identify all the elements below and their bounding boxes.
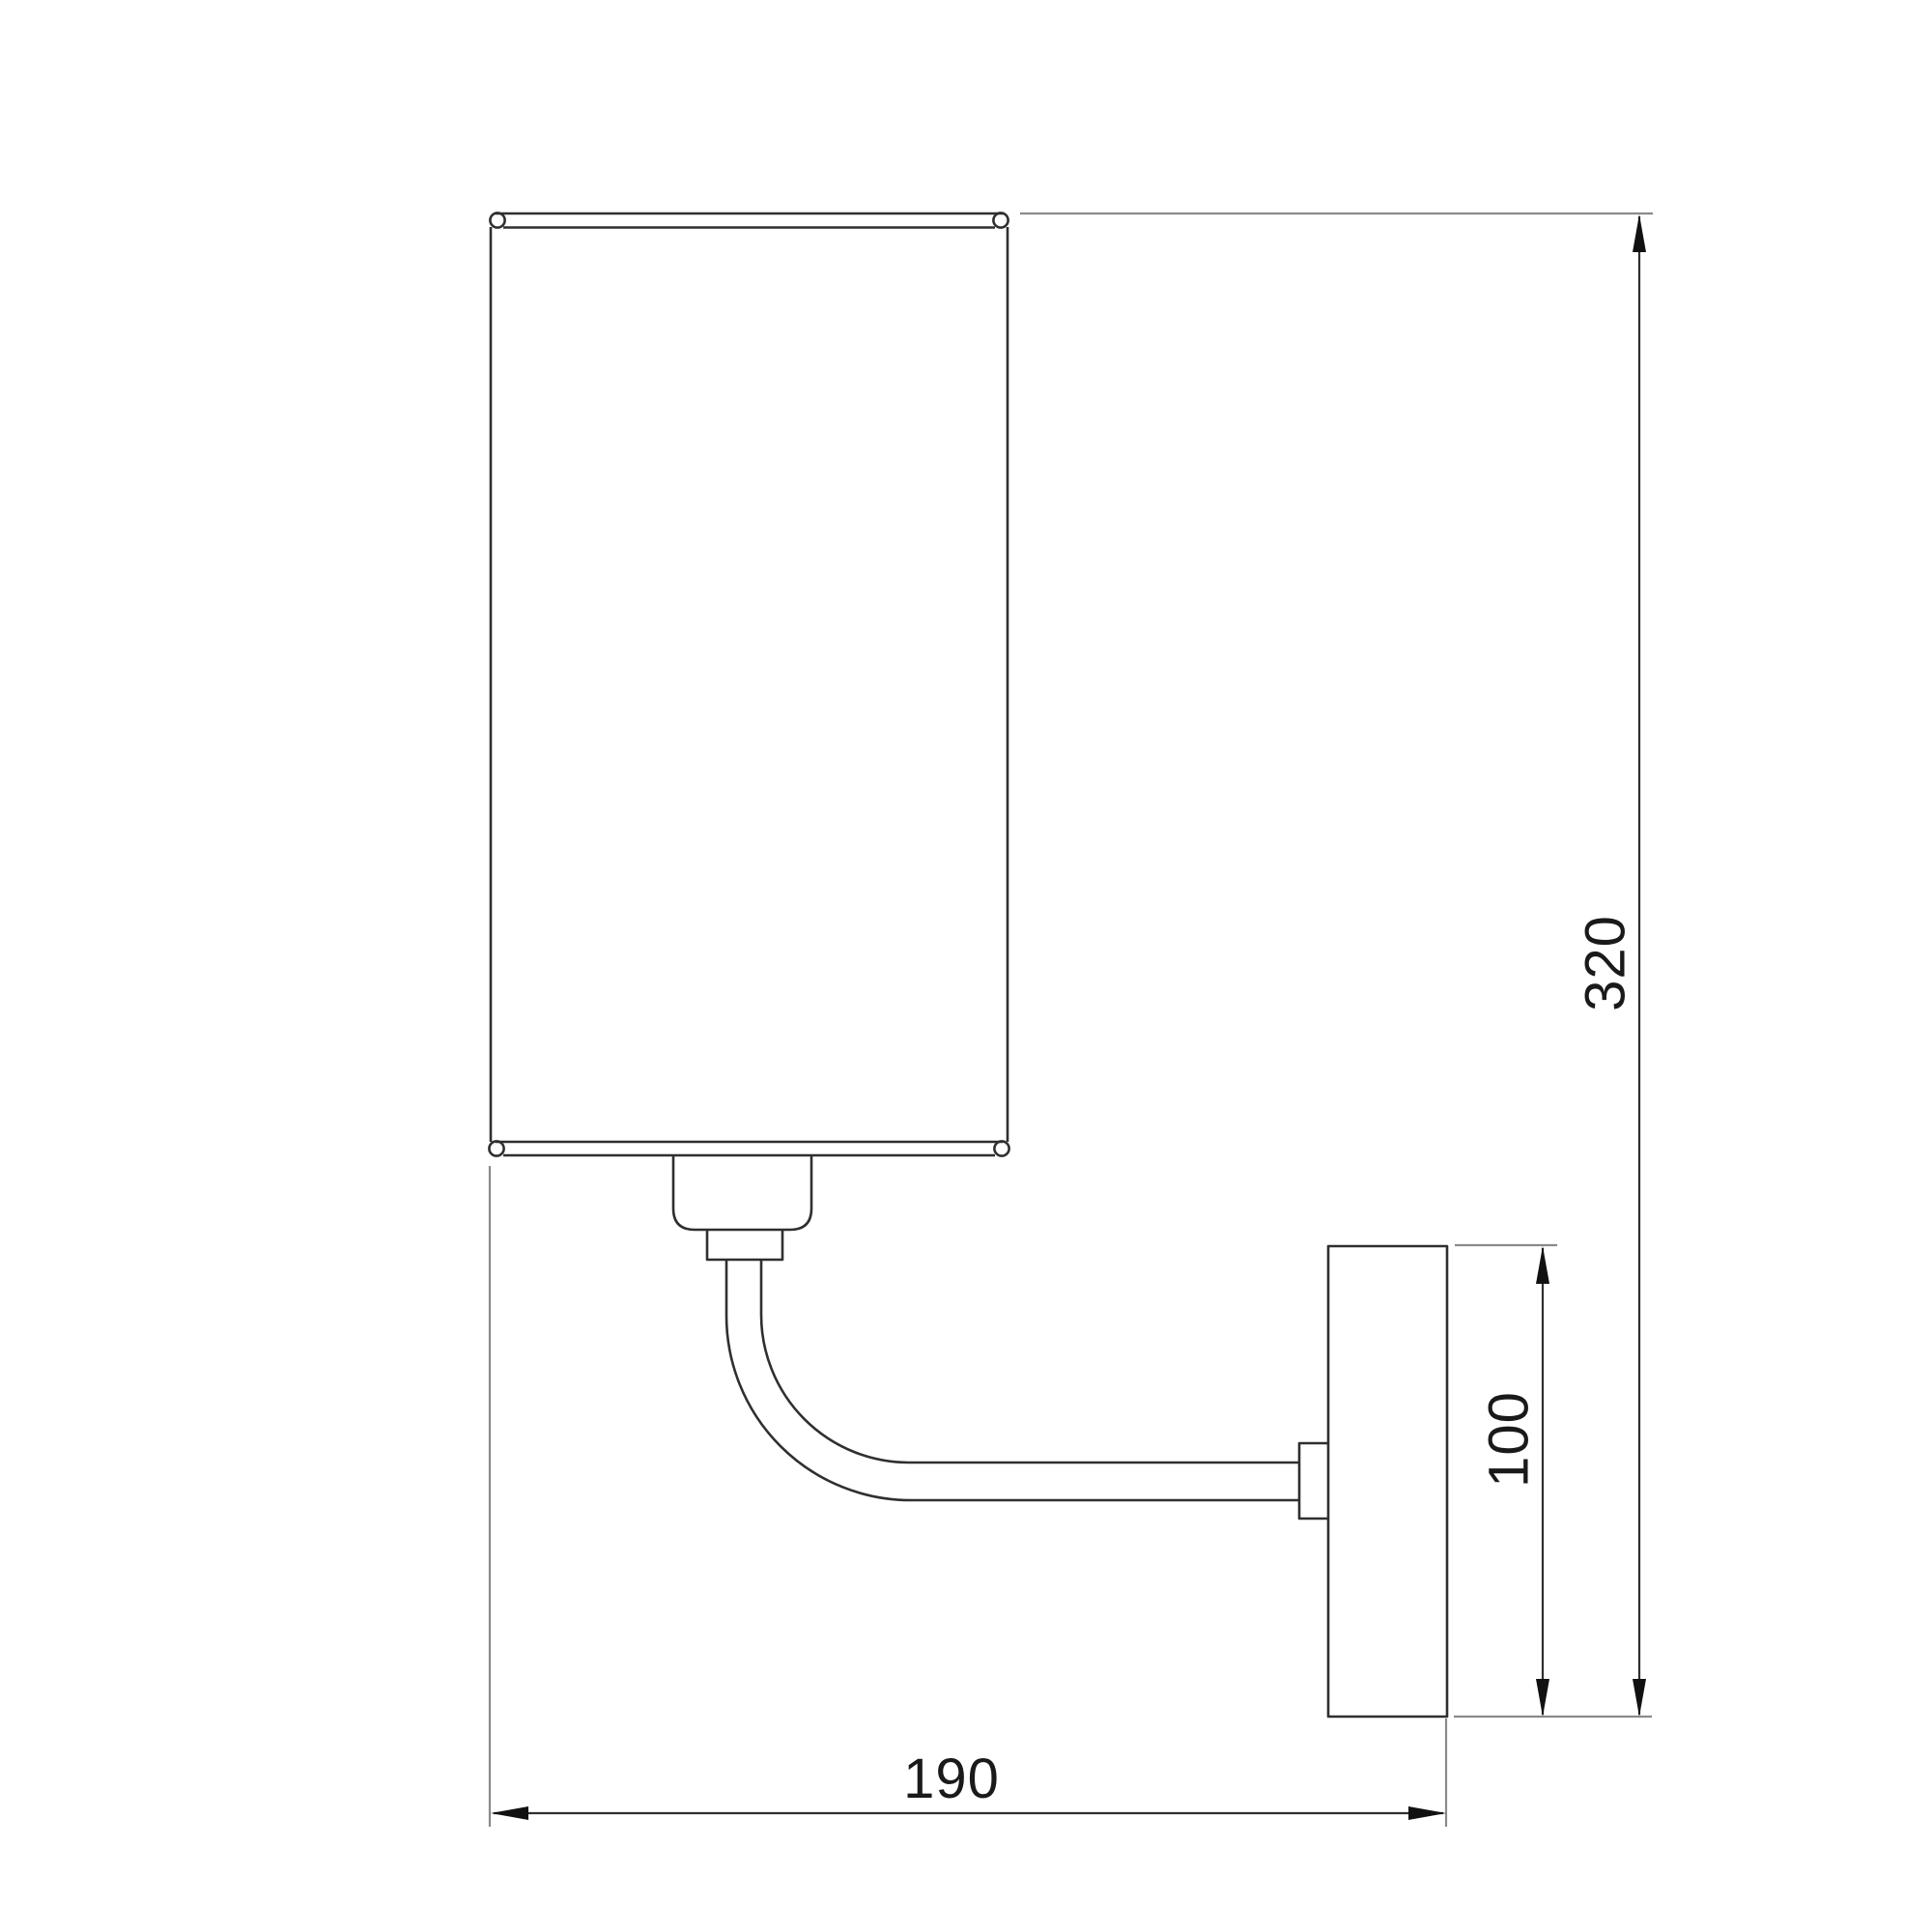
dimension-label-190: 190 bbox=[903, 1747, 1000, 1810]
dimension-backplate-height: 100 bbox=[1477, 1246, 1549, 1717]
arrow-left-icon bbox=[491, 1806, 528, 1820]
arrow-down-icon bbox=[1633, 1679, 1646, 1717]
shade-top-right-rim-cap bbox=[993, 213, 1008, 227]
shade-bottom-left-rim-cap bbox=[489, 1141, 503, 1155]
extension-lines bbox=[490, 213, 1653, 1827]
socket-neck bbox=[707, 1230, 782, 1260]
wall-backplate bbox=[1328, 1246, 1447, 1717]
arm-wall-flange bbox=[1299, 1443, 1328, 1519]
arm-inner-contour bbox=[761, 1260, 1299, 1463]
dimension-label-320: 320 bbox=[1574, 915, 1636, 1011]
socket-holder bbox=[673, 1156, 811, 1260]
shade-bottom-right-rim-cap bbox=[994, 1141, 1009, 1155]
lampshade-outline bbox=[489, 213, 1009, 1155]
dimension-label-100: 100 bbox=[1477, 1391, 1540, 1488]
dimension-projection-depth: 190 bbox=[491, 1747, 1446, 1820]
technical-drawing-canvas: 320 100 190 bbox=[0, 0, 1932, 1932]
arrow-down-icon bbox=[1536, 1679, 1549, 1717]
socket-cup bbox=[673, 1156, 811, 1230]
arrow-right-icon bbox=[1408, 1806, 1446, 1820]
arm-outer-contour bbox=[726, 1260, 1299, 1500]
arrow-up-icon bbox=[1633, 214, 1646, 252]
wall-lamp-dimension-drawing: 320 100 190 bbox=[0, 0, 1932, 1932]
shade-top-left-rim-cap bbox=[490, 213, 504, 227]
dimension-overall-height: 320 bbox=[1574, 214, 1646, 1717]
arrow-up-icon bbox=[1536, 1246, 1549, 1284]
arm-tube bbox=[726, 1260, 1328, 1519]
